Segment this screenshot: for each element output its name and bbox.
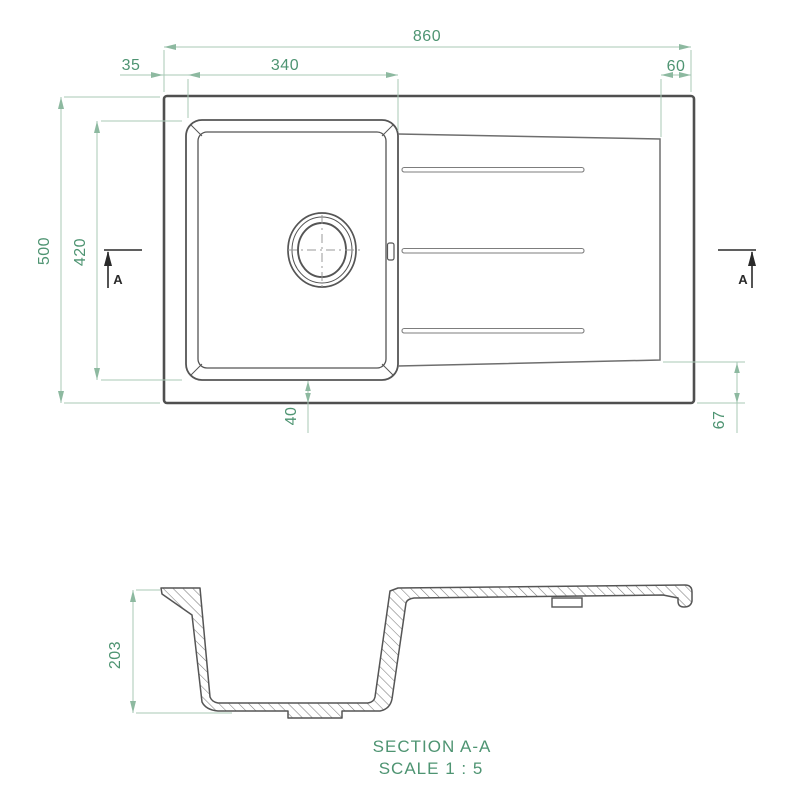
section-caption-title: SECTION A-A xyxy=(373,737,492,756)
drainer-outline xyxy=(398,134,660,366)
section-marker-right: A xyxy=(718,250,756,288)
dim-drainer-bottom-offset: 67 xyxy=(711,411,728,430)
dim-bowl-bottom-offset: 40 xyxy=(283,407,300,426)
dim-drainer-right-margin: 60 xyxy=(667,58,686,75)
dimension-labels: 860 35 340 60 500 420 40 67 xyxy=(36,28,728,429)
section-view: 203 SECTION A-A SCALE 1 : 5 xyxy=(107,585,692,778)
drawing-sheet: A A xyxy=(0,0,800,800)
section-marker-left: A xyxy=(104,250,142,288)
drain-outline xyxy=(288,213,360,287)
dim-bowl-left-offset: 35 xyxy=(122,57,141,74)
section-fixing-clip xyxy=(552,598,582,607)
sink-technical-drawing: A A xyxy=(0,0,800,800)
dim-bowl-width: 340 xyxy=(271,57,299,74)
section-cut-profile xyxy=(161,585,692,718)
drainer-grooves xyxy=(402,168,584,334)
dim-overall-depth: 500 xyxy=(36,237,53,265)
top-view: A A xyxy=(36,28,756,433)
dim-bowl-depth: 420 xyxy=(72,238,89,266)
dim-overall-width: 860 xyxy=(413,28,441,45)
sink-outline xyxy=(164,96,694,403)
dim-section-bowl-height: 203 xyxy=(107,641,124,669)
section-caption-scale: SCALE 1 : 5 xyxy=(379,759,484,778)
section-marker-left-label: A xyxy=(113,272,123,287)
overflow-slot xyxy=(388,243,395,260)
section-marker-right-label: A xyxy=(738,272,748,287)
